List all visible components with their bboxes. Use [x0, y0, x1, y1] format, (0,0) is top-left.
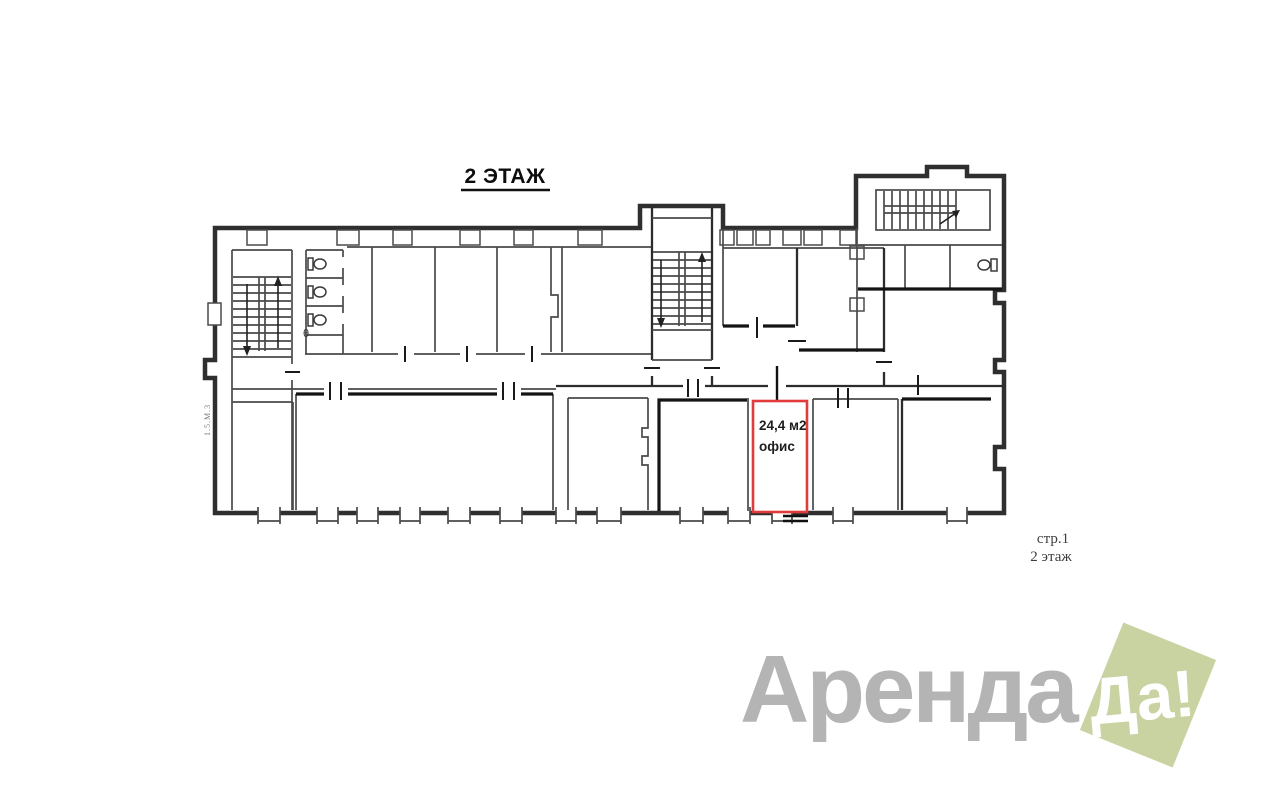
theta-mark: θ: [303, 328, 309, 340]
scanned-floor-plan-sheet: θ: [0, 0, 1280, 800]
highlight-room: 24,4 м2 офис: [753, 401, 807, 512]
highlight-area-label: 24,4 м2: [759, 418, 807, 433]
side-note: 1.5.М.3: [203, 404, 212, 436]
logo-word-gray: Аренда: [740, 636, 1079, 743]
toilet-door-gaps: [340, 257, 348, 324]
page-note-line2: 2 этаж: [1030, 549, 1072, 565]
plan-title: 2 ЭТАЖ: [464, 165, 546, 188]
left-wall-window-niche: [208, 303, 221, 325]
highlight-type-label: офис: [759, 439, 795, 454]
logo-word-accent: Да!: [1086, 656, 1198, 739]
page-note-line1: стр.1: [1037, 531, 1069, 547]
